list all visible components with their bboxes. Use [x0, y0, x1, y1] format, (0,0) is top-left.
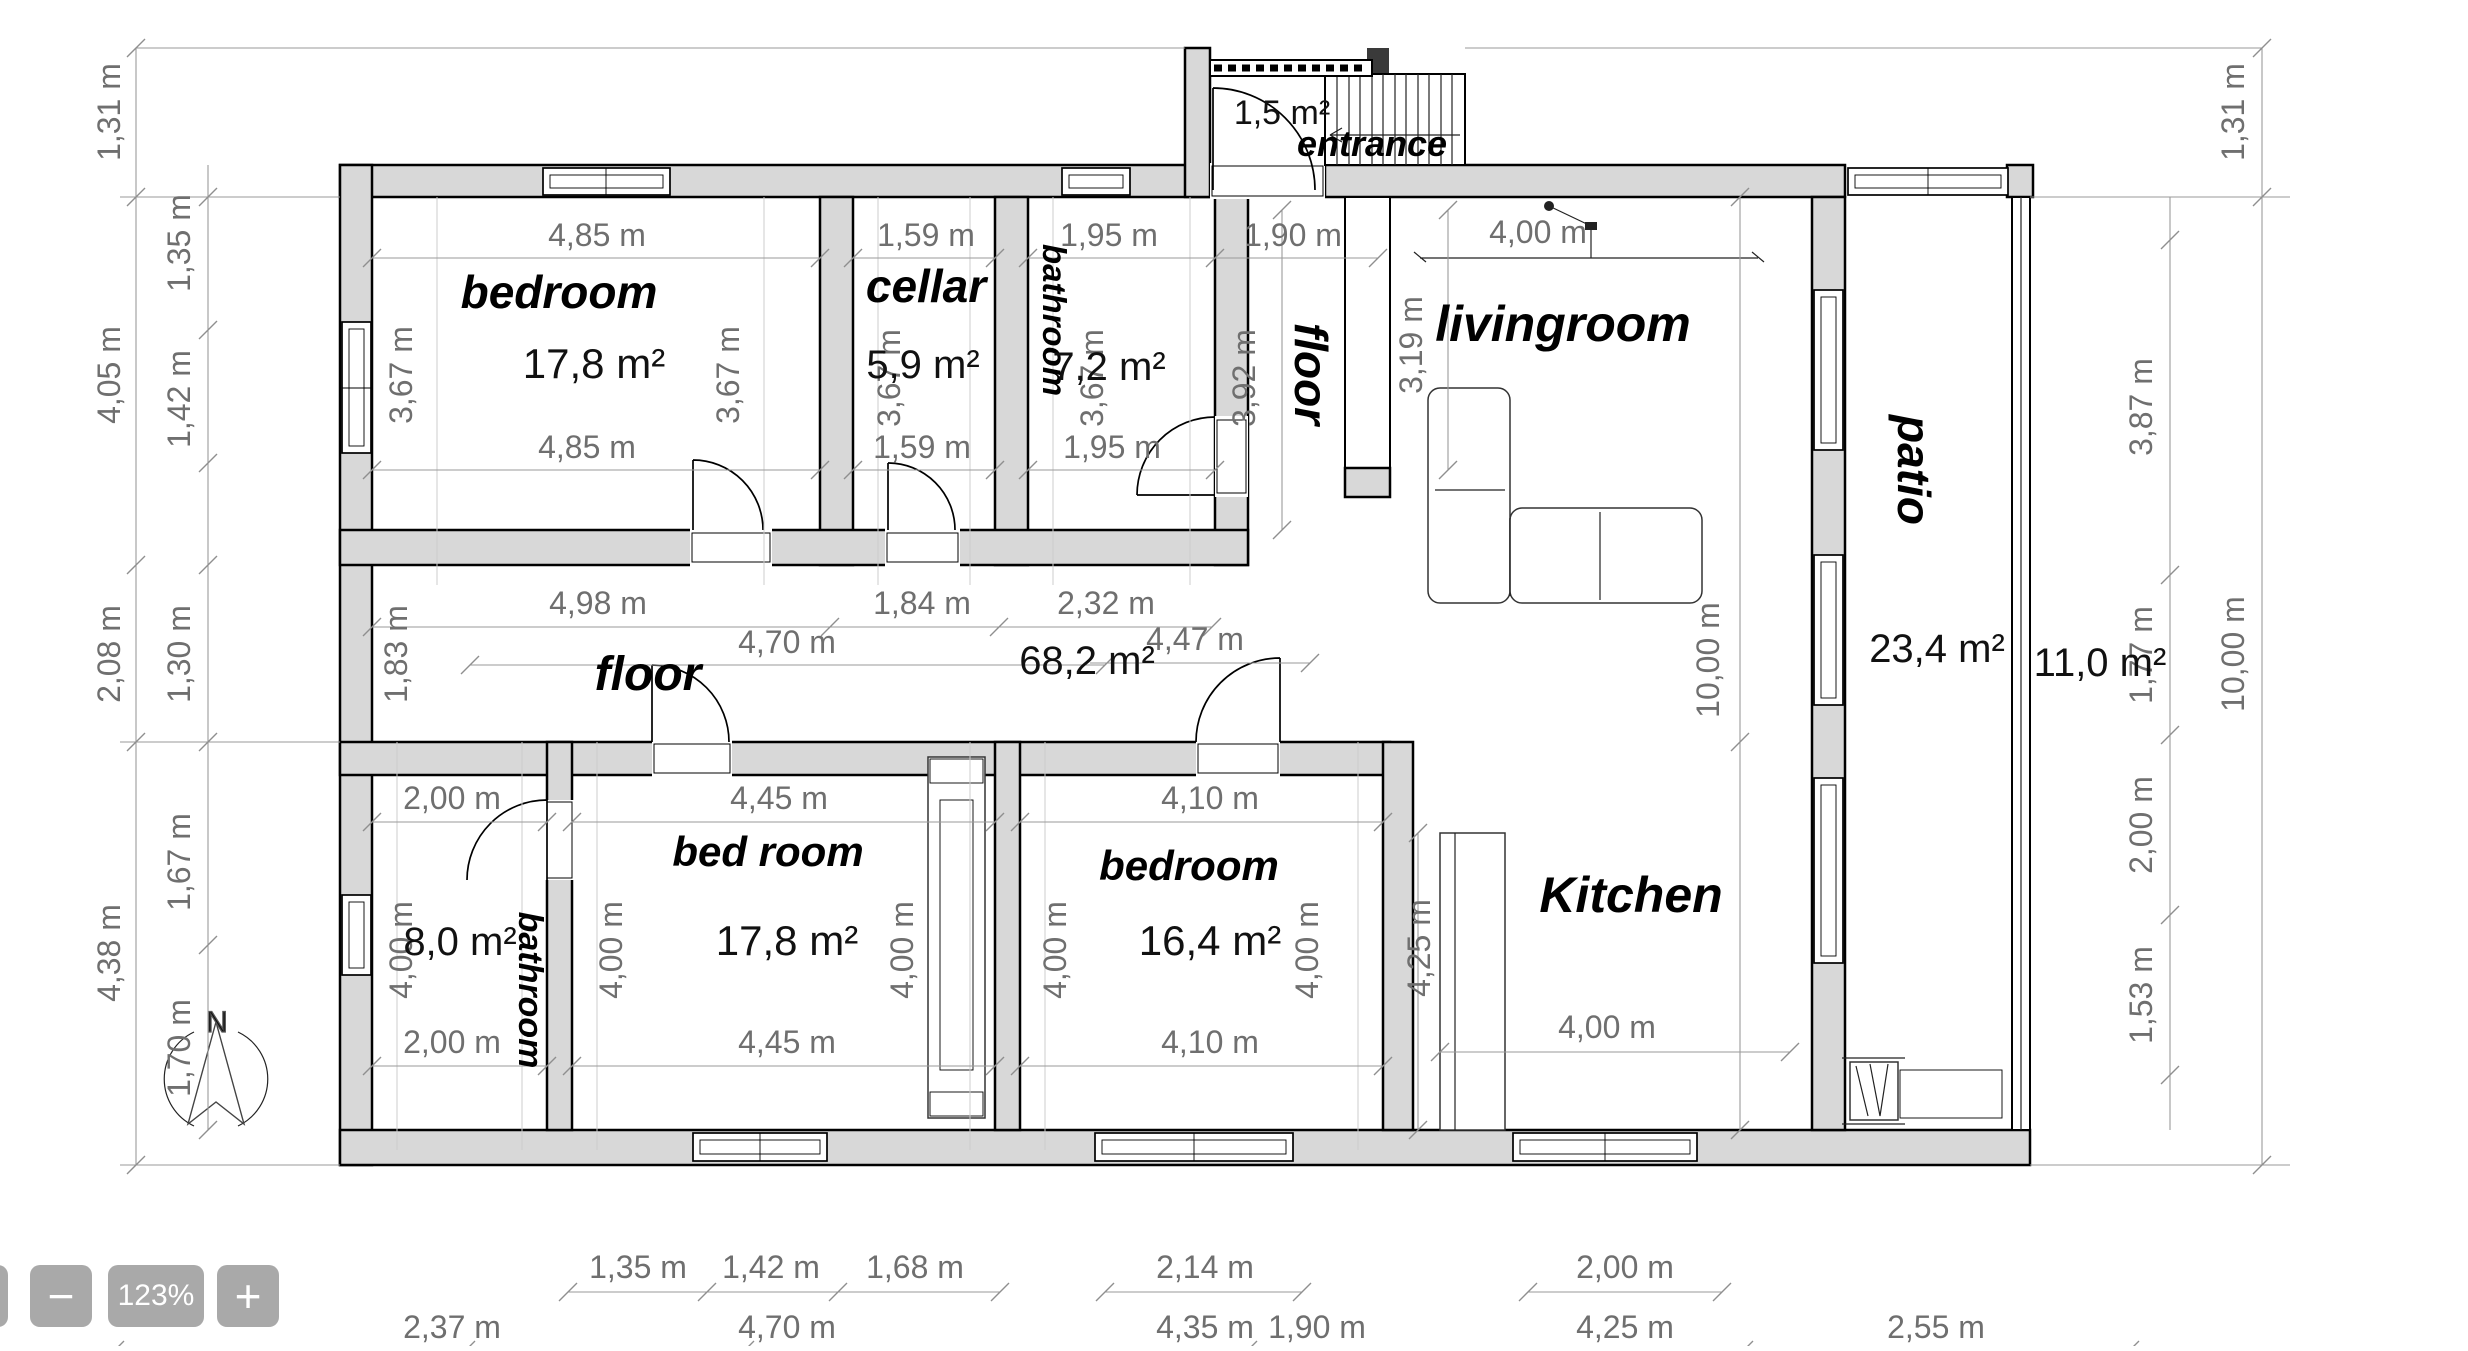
dim-label: 1,42 m: [722, 1249, 820, 1285]
dim-label: 10,00 m: [2215, 596, 2251, 712]
dim-label: 4,10 m: [1161, 1024, 1259, 1060]
floorplan-canvas[interactable]: N 4,85 m 4,85 m 3,67 m 3,67 m 1,59 m 1,5…: [0, 0, 2468, 1346]
kitchen-counter: [1440, 833, 1505, 1130]
wardrobe: [928, 757, 985, 1118]
dim-label: 10,00 m: [1690, 602, 1726, 718]
dim-label: 4,00 m: [884, 901, 920, 999]
dim-label: 4,35 m: [1156, 1309, 1254, 1345]
zoom-level-button[interactable]: 123%: [108, 1265, 204, 1327]
dim-label: 2,55 m: [1887, 1309, 1985, 1345]
dim-label: 2,00 m: [403, 780, 501, 816]
dim-label: 3,92 m: [1226, 329, 1262, 427]
dim-label: 4,25 m: [1576, 1309, 1674, 1345]
area-label-floor-hall: 68,2 m²: [1019, 639, 1155, 683]
zoom-out-button[interactable]: −: [30, 1265, 92, 1327]
room-label-floor-n: floor: [1285, 323, 1337, 427]
floorplan-drawing: N 4,85 m 4,85 m 3,67 m 3,67 m 1,59 m 1,5…: [0, 0, 2468, 1346]
dim-label: 1,67 m: [161, 813, 197, 911]
dim-label: 4,00 m: [593, 901, 629, 999]
dim-label: 4,45 m: [738, 1024, 836, 1060]
patio-grill: [1842, 1058, 2002, 1124]
dim-label: 1,30 m: [161, 605, 197, 703]
room-label-bedroom-s: bed room: [672, 828, 863, 875]
dim-label: 2,08 m: [91, 605, 127, 703]
dim-label: 4,85 m: [538, 429, 636, 465]
area-label-bathroom-sw: 8,0 m²: [403, 920, 516, 964]
area-label-bedroom-s: 17,8 m²: [716, 917, 858, 964]
dim-label: 1,90 m: [1244, 217, 1342, 253]
room-label-floor-hall: floor: [595, 648, 704, 701]
room-label-livingroom: livingroom: [1435, 296, 1691, 352]
patio-bench: [1900, 1070, 2002, 1118]
sofa: [1428, 388, 1702, 603]
dim-label: 1,83 m: [378, 605, 414, 703]
dim-label: 1,68 m: [866, 1249, 964, 1285]
dim-label: 4,85 m: [548, 217, 646, 253]
compass-north-label: N: [206, 1006, 228, 1039]
dim-label: 1,95 m: [1063, 429, 1161, 465]
dim-label: 4,45 m: [730, 780, 828, 816]
room-label-bathroom-sw: bathroom: [511, 912, 549, 1069]
dim-label: 1,59 m: [877, 217, 975, 253]
dim-label: 1,95 m: [1060, 217, 1158, 253]
dim-label: 4,05 m: [91, 326, 127, 424]
dim-label: 4,00 m: [1558, 1009, 1656, 1045]
area-label-entrance: 1,5 m²: [1234, 94, 1330, 132]
dim-label: 3,87 m: [2123, 358, 2159, 456]
room-label-cellar: cellar: [866, 260, 988, 312]
dim-label: 4,70 m: [738, 624, 836, 660]
dim-label: 1,90 m: [1268, 1309, 1366, 1345]
area-label-patio: 23,4 m²: [1869, 627, 2005, 671]
dim-label: 1,70 m: [161, 999, 197, 1097]
area-label-bathroom-n: 7,2 m²: [1052, 345, 1165, 389]
dim-label: 3,67 m: [710, 326, 746, 424]
dim-label: 4,25 m: [1401, 899, 1437, 997]
dim-label: 4,00 m: [1037, 901, 1073, 999]
dim-label: 2,37 m: [403, 1309, 501, 1345]
dim-label: 1,42 m: [161, 350, 197, 448]
dim-label: 1,35 m: [161, 194, 197, 292]
clipped-button[interactable]: [0, 1265, 8, 1327]
dim-label: 2,00 m: [1576, 1249, 1674, 1285]
area-label-bedroom-se: 16,4 m²: [1139, 917, 1281, 964]
dim-label: 4,00 m: [1289, 901, 1325, 999]
dim-label: 4,10 m: [1161, 780, 1259, 816]
dim-label: 1,59 m: [873, 429, 971, 465]
dim-label: 3,19 m: [1393, 296, 1429, 394]
dim-label: 2,14 m: [1156, 1249, 1254, 1285]
dim-label: 4,98 m: [549, 585, 647, 621]
dim-label: 4,70 m: [738, 1309, 836, 1345]
area-label-bedroom-nw: 17,8 m²: [523, 340, 665, 387]
room-label-patio: patio: [1888, 413, 1940, 525]
area-label-patio-side: 11,0 m²: [2034, 641, 2167, 685]
zoom-in-button[interactable]: +: [217, 1265, 279, 1327]
room-label-bedroom-se: bedroom: [1099, 842, 1279, 889]
dim-label: 3,67 m: [383, 326, 419, 424]
dim-label: 2,00 m: [403, 1024, 501, 1060]
dim-label: 2,32 m: [1057, 585, 1155, 621]
room-label-bedroom-nw: bedroom: [461, 266, 658, 318]
ceiling-lamp: [1414, 201, 1764, 262]
dim-label: 4,00 m: [1489, 214, 1587, 250]
dim-label: 1,31 m: [2215, 63, 2251, 161]
dim-label: 2,00 m: [2123, 776, 2159, 874]
dim-label: 4,38 m: [91, 904, 127, 1002]
dim-label: 1,31 m: [91, 63, 127, 161]
room-label-kitchen: Kitchen: [1539, 867, 1722, 923]
dim-label: 1,35 m: [589, 1249, 687, 1285]
dim-label: 1,53 m: [2123, 946, 2159, 1044]
dim-label: 1,84 m: [873, 585, 971, 621]
area-label-cellar: 5,9 m²: [866, 343, 979, 387]
dim-label: 4,47 m: [1146, 621, 1244, 657]
